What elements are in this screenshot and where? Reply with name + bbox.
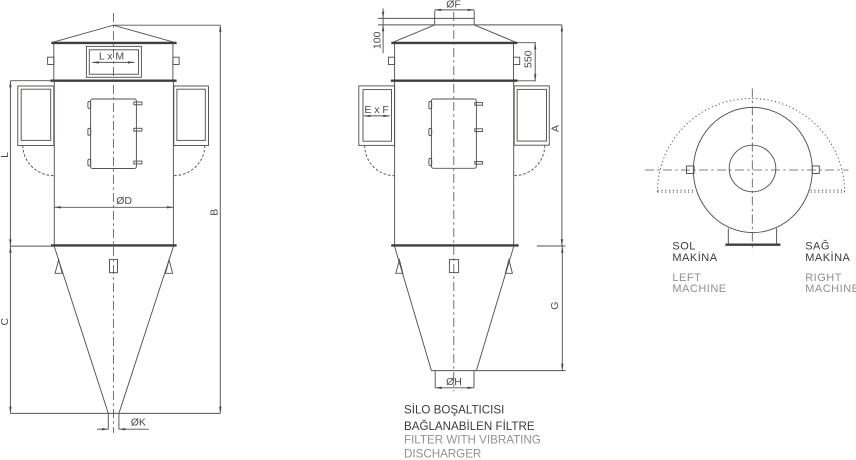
svg-text:FILTER WITH VIBRATING: FILTER WITH VIBRATING: [404, 433, 541, 446]
svg-text:G: G: [549, 302, 561, 310]
svg-text:ØK: ØK: [131, 417, 146, 429]
svg-text:MAKİNA: MAKİNA: [672, 251, 717, 264]
svg-text:A: A: [550, 125, 562, 132]
svg-text:ØD: ØD: [116, 195, 132, 207]
svg-text:550: 550: [522, 50, 534, 68]
svg-text:B: B: [209, 209, 221, 216]
svg-text:E x F: E x F: [364, 104, 389, 116]
svg-text:L: L: [0, 152, 11, 158]
svg-text:ØH: ØH: [446, 376, 462, 388]
svg-text:BAĞLANABİLEN FİLTRE: BAĞLANABİLEN FİLTRE: [404, 420, 535, 433]
svg-text:ØF: ØF: [446, 0, 461, 10]
svg-text:MACHINE: MACHINE: [672, 283, 726, 295]
svg-text:DISCHARGER: DISCHARGER: [404, 448, 481, 460]
svg-text:L x M: L x M: [99, 50, 124, 62]
svg-text:SİLO BOŞALTICISI: SİLO BOŞALTICISI: [404, 403, 504, 416]
svg-text:C: C: [0, 317, 11, 325]
svg-text:100: 100: [372, 31, 384, 49]
svg-text:MAKİNA: MAKİNA: [805, 251, 850, 264]
svg-text:SOL: SOL: [672, 241, 696, 253]
svg-text:SAĞ: SAĞ: [805, 240, 830, 253]
svg-text:MACHINE: MACHINE: [805, 283, 856, 295]
